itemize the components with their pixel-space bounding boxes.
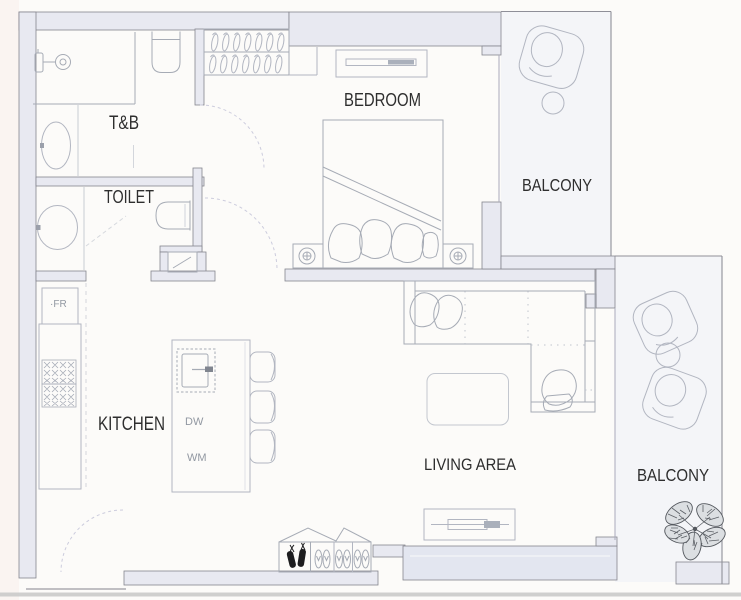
svg-text:WM: WM (187, 452, 207, 464)
svg-text:LIVING AREA: LIVING AREA (424, 455, 517, 474)
svg-text:·FR: ·FR (50, 299, 67, 310)
svg-text:T&B: T&B (109, 113, 139, 134)
svg-text:BEDROOM: BEDROOM (344, 90, 421, 110)
svg-text:DW: DW (185, 416, 204, 428)
svg-text:TOILET: TOILET (104, 187, 154, 207)
svg-text:KITCHEN: KITCHEN (98, 414, 165, 435)
svg-text:BALCONY: BALCONY (522, 175, 592, 195)
svg-text:BALCONY: BALCONY (637, 465, 709, 485)
